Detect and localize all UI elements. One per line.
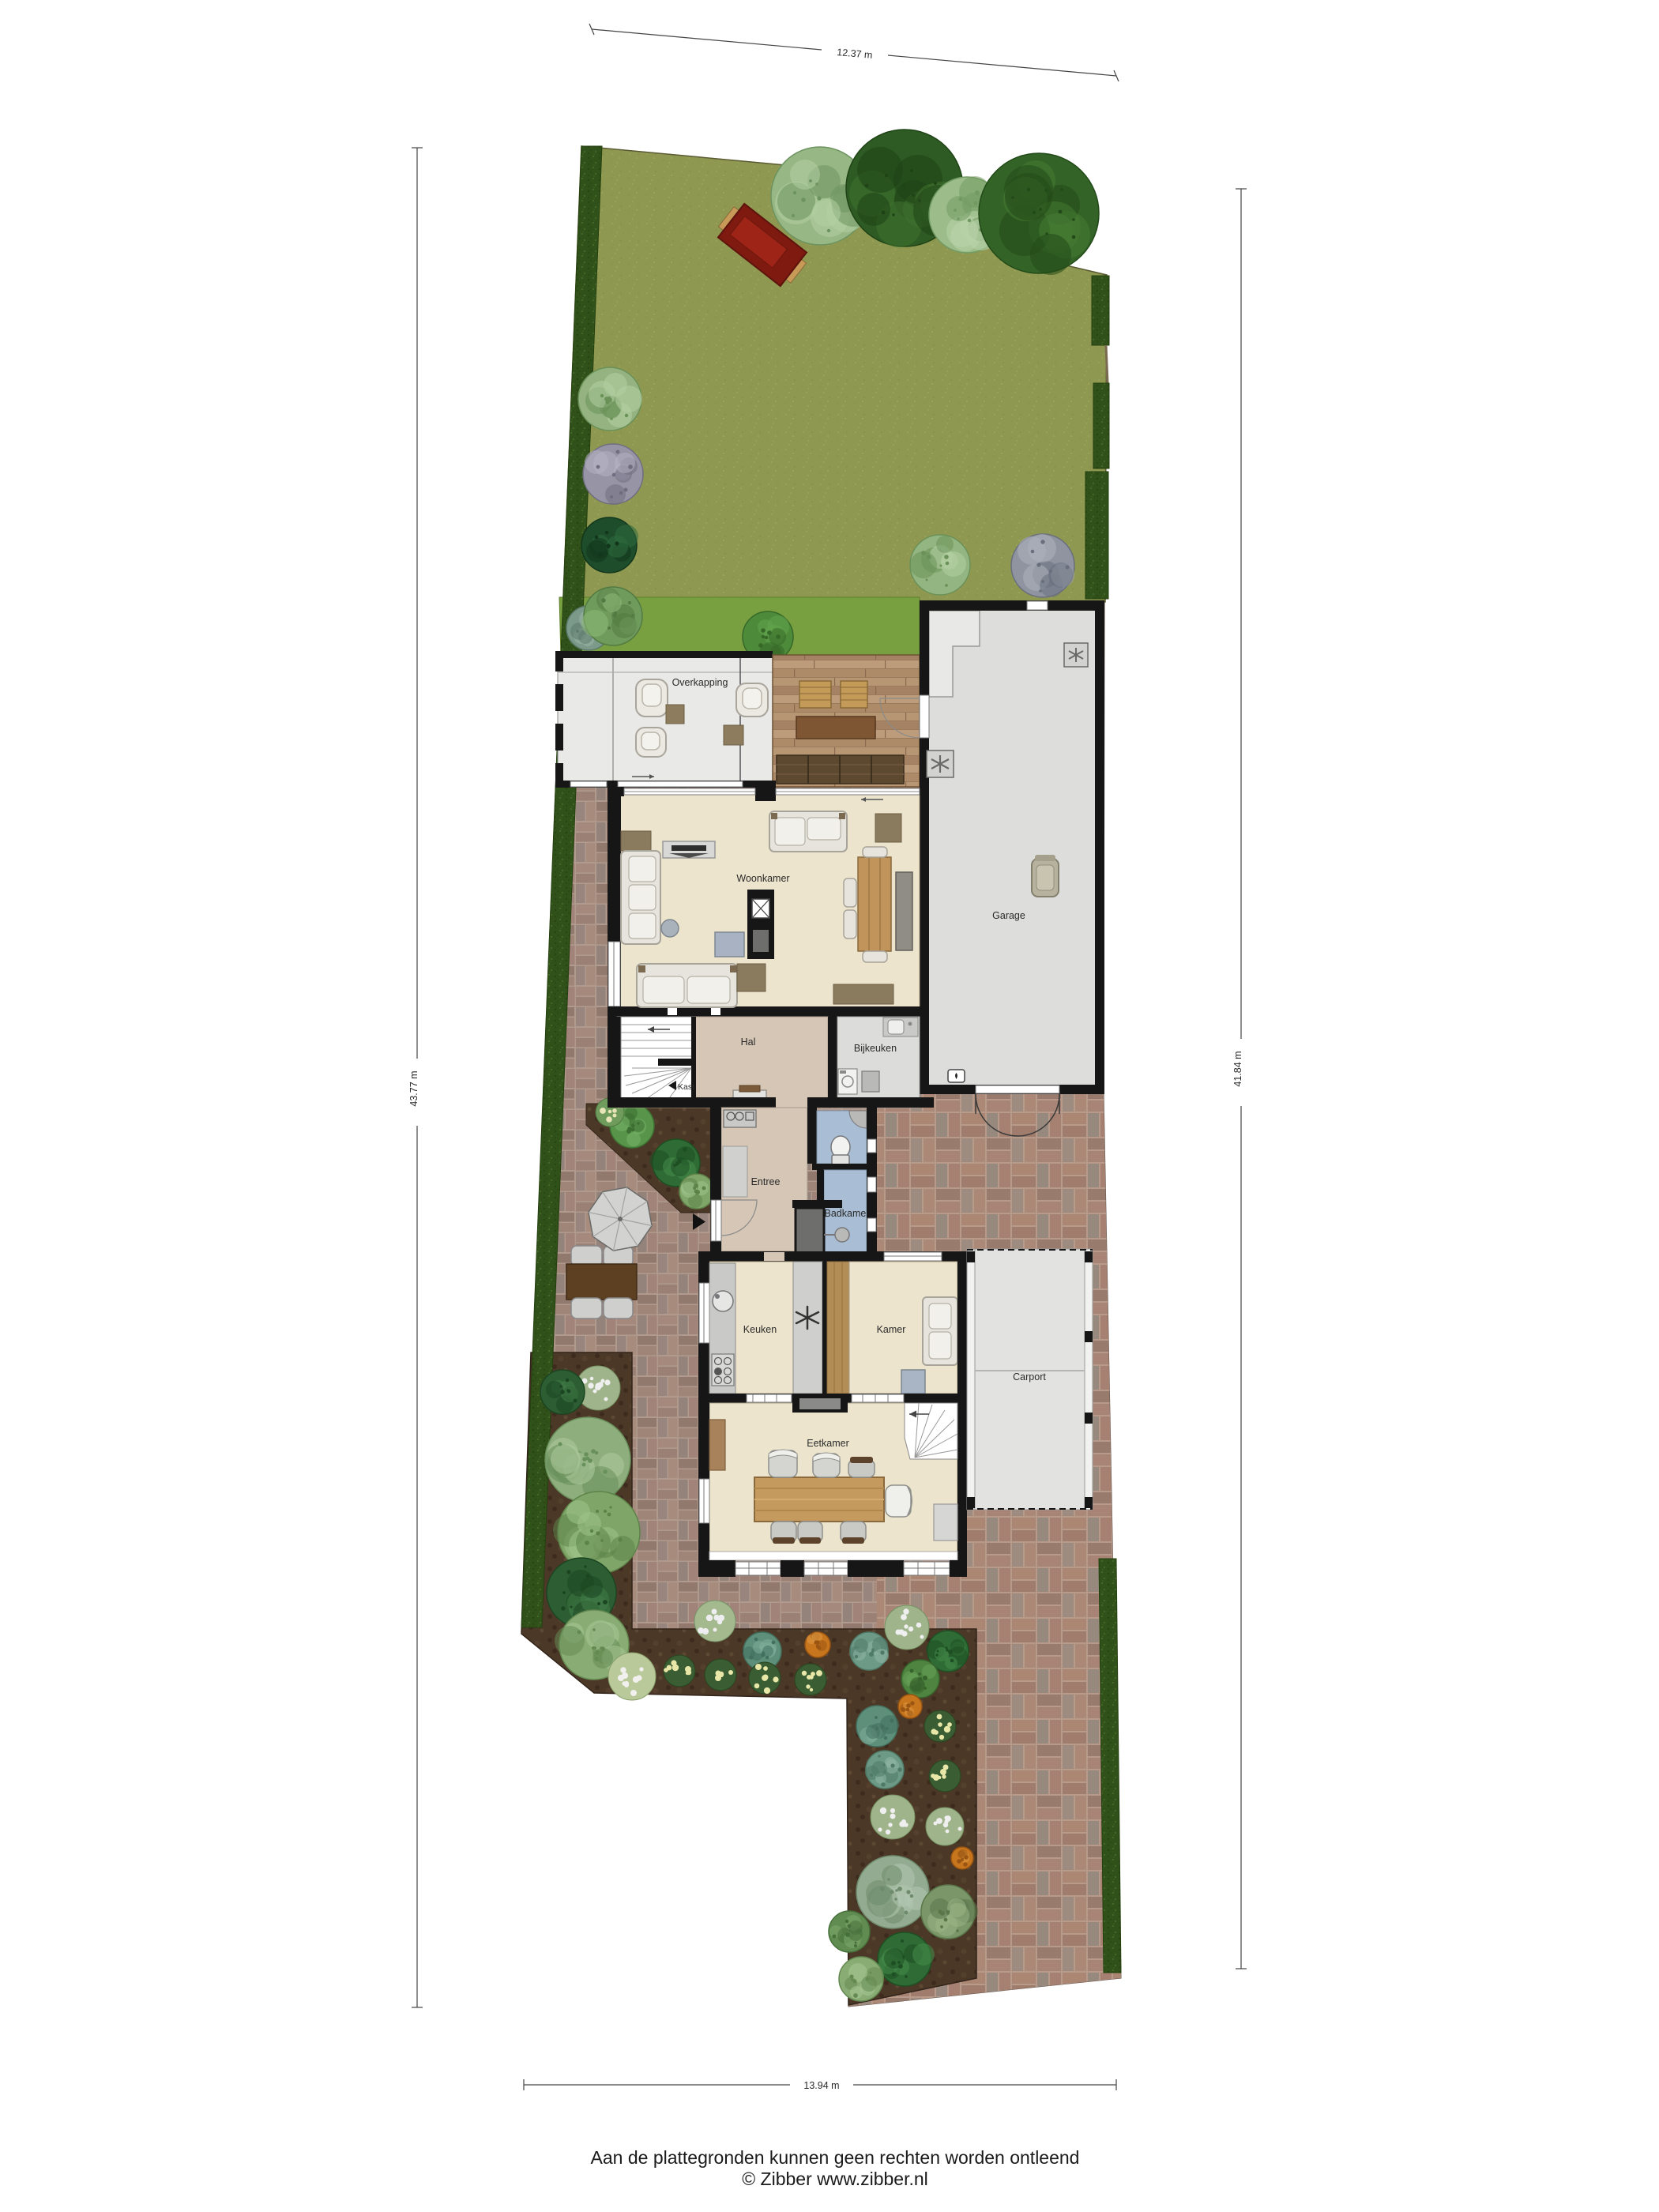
svg-text:Bijkeuken: Bijkeuken bbox=[854, 1043, 897, 1054]
svg-text:Keuken: Keuken bbox=[743, 1324, 777, 1335]
svg-text:Garage: Garage bbox=[992, 910, 1025, 921]
svg-text:Carport: Carport bbox=[1013, 1371, 1046, 1382]
svg-text:Aan de plattegronden kunnen ge: Aan de plattegronden kunnen geen rechten… bbox=[591, 2147, 1080, 2168]
svg-text:43.77 m: 43.77 m bbox=[408, 1070, 419, 1106]
svg-text:13.94 m: 13.94 m bbox=[803, 2080, 839, 2091]
svg-text:© Zibber www.zibber.nl: © Zibber www.zibber.nl bbox=[742, 2169, 928, 2189]
svg-text:41.84 m: 41.84 m bbox=[1232, 1051, 1243, 1086]
svg-text:Entree: Entree bbox=[751, 1176, 781, 1187]
svg-text:Eetkamer: Eetkamer bbox=[807, 1438, 849, 1449]
svg-text:Kast: Kast bbox=[678, 1082, 694, 1092]
svg-text:Woonkamer: Woonkamer bbox=[736, 873, 789, 884]
svg-text:Overkapping: Overkapping bbox=[672, 677, 728, 688]
svg-text:Hal: Hal bbox=[741, 1036, 756, 1048]
svg-text:Badkamer: Badkamer bbox=[825, 1208, 870, 1219]
svg-text:Kamer: Kamer bbox=[877, 1324, 906, 1335]
